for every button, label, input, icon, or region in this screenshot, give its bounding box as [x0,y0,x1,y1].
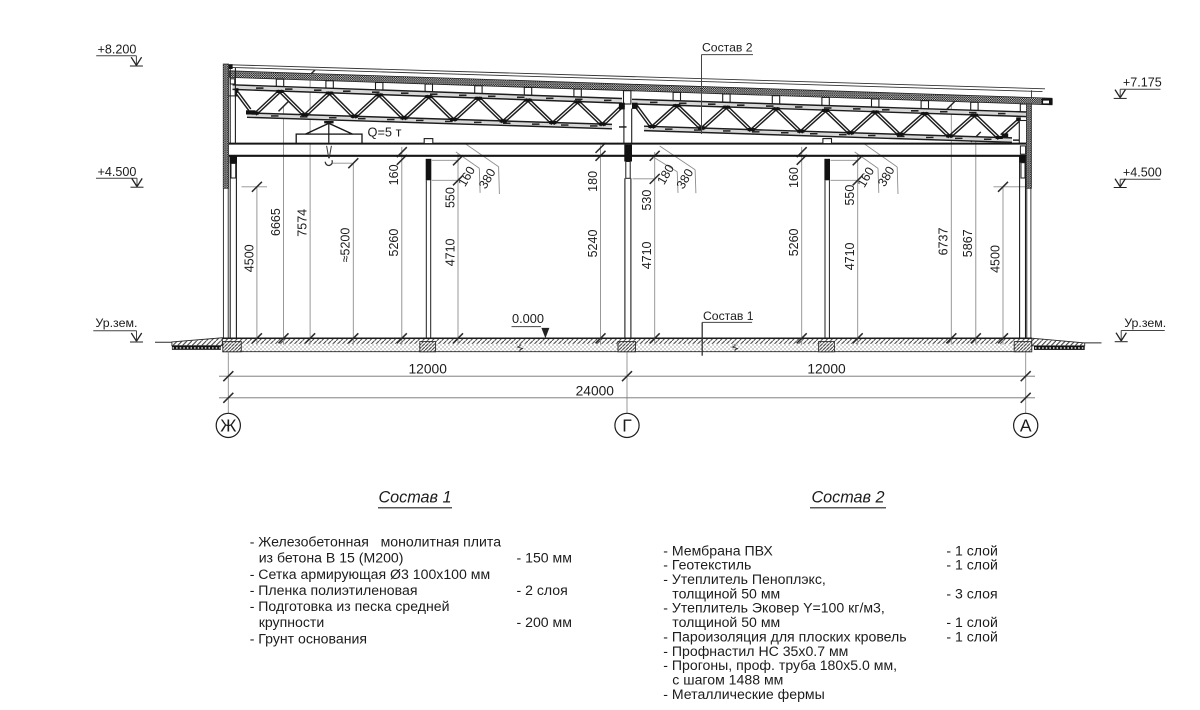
svg-text:530: 530 [640,190,654,211]
svg-text:7574: 7574 [296,209,310,237]
svg-text:550: 550 [843,185,857,206]
svg-text:160: 160 [455,164,478,189]
svg-text:5260: 5260 [787,228,801,256]
svg-text:- Пленка полиэтиленовая: - Пленка полиэтиленовая [250,582,418,598]
svg-text:+7.175: +7.175 [1123,75,1162,89]
svg-text:0.000: 0.000 [512,311,544,326]
svg-text:Ур.зем.: Ур.зем. [95,316,137,330]
svg-text:- 2 слоя: - 2 слоя [517,582,568,598]
svg-text:12000: 12000 [807,362,846,377]
svg-text:Г: Г [622,416,632,436]
svg-text:крупности: крупности [259,614,325,630]
svg-text:550: 550 [443,187,457,208]
svg-text:- 1 слой: - 1 слой [946,557,998,573]
svg-text:- 150 мм: - 150 мм [517,550,572,566]
svg-text:24000: 24000 [576,383,615,398]
svg-text:4710: 4710 [640,241,654,269]
svg-text:160: 160 [787,167,801,188]
svg-text:5867: 5867 [961,229,975,257]
svg-text:180: 180 [586,171,600,192]
svg-text:- 3 слоя: - 3 слоя [946,585,997,601]
svg-text:- 200 мм: - 200 мм [517,614,572,630]
svg-text:5260: 5260 [387,229,401,257]
svg-text:+4.500: +4.500 [98,165,137,179]
svg-text:+4.500: +4.500 [1123,165,1162,179]
svg-text:- Сетка армирующая Ø3 100х100: - Сетка армирующая Ø3 100х100 мм [250,566,490,582]
svg-text:- Железобетонная монолитная: - Железобетонная монолитная плита [250,534,502,550]
svg-text:Ж: Ж [220,416,236,436]
svg-text:из бетона В 15 (М200): из бетона В 15 (М200) [259,550,404,566]
svg-text:Состав 1: Состав 1 [703,309,754,323]
svg-text:4710: 4710 [443,238,457,266]
svg-text:4500: 4500 [242,244,256,272]
svg-text:+8.200: +8.200 [98,43,137,57]
svg-text:Состав 2: Состав 2 [811,489,884,507]
svg-text:160: 160 [387,164,401,185]
svg-text:6665: 6665 [269,208,283,236]
svg-text:4500: 4500 [988,245,1002,273]
svg-text:Ур.зем.: Ур.зем. [1124,316,1166,330]
svg-text:Состав 2: Состав 2 [702,41,753,55]
svg-text:Состав 1: Состав 1 [378,489,451,507]
svg-text:- Грунт основания: - Грунт основания [250,630,367,646]
svg-text:А: А [1020,416,1032,436]
svg-text:12000: 12000 [409,362,448,377]
svg-text:- Металлические фермы: - Металлические фермы [663,686,824,702]
svg-text:5240: 5240 [586,230,600,258]
svg-text:- 1 слой: - 1 слой [946,628,998,644]
svg-text:≈5200: ≈5200 [339,228,353,263]
svg-text:4710: 4710 [843,242,857,270]
svg-text:6737: 6737 [937,228,951,256]
svg-text:- Подготовка из песка средней: - Подготовка из песка средней [250,598,450,614]
svg-text:380: 380 [674,166,697,191]
svg-text:Q=5 т: Q=5 т [368,124,402,139]
